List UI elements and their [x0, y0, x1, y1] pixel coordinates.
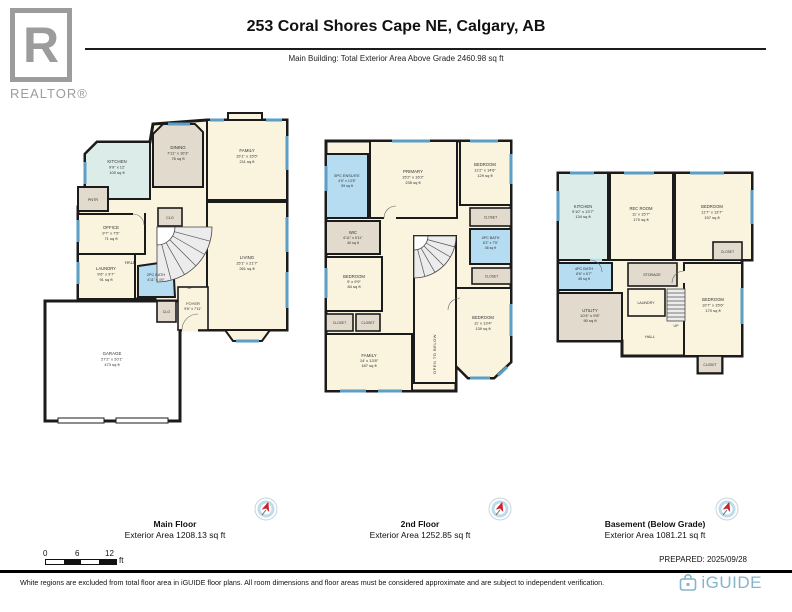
second-floor-plan: 5PC ENSUITE 4'5" x 13'5" 59 sq ft WIC 6'… — [322, 136, 514, 400]
room-label: CLOSET — [721, 250, 734, 254]
room-area: 187 sq ft — [361, 363, 377, 368]
stairs-up-label: UP — [674, 324, 680, 328]
room-label: CLOSET — [333, 321, 346, 325]
floorplan-page: R REALTOR® 253 Coral Shores Cape NE, Cal… — [0, 0, 792, 612]
room-dims: 27'2" x 20'1" — [101, 357, 124, 362]
room-dims: 9'6" x 7'11" — [184, 307, 202, 311]
room-label: FAMILY — [239, 148, 254, 153]
room-dims: 7'11" x 10'3" — [167, 151, 189, 156]
room-area: 134 sq ft — [575, 214, 591, 219]
page-title: 253 Coral Shores Cape NE, Calgary, AB — [0, 18, 792, 36]
room-dims: 11'7" x 13'7" — [701, 210, 723, 215]
room-dims: 4'11" x 4'9" — [147, 278, 165, 282]
room-area: 84 sq ft — [347, 284, 361, 289]
room-label: CLOSET — [484, 216, 497, 220]
room-label: GARAGE — [103, 351, 122, 356]
room-dims: 9'7" x 7'5" — [102, 231, 120, 236]
room-area: 211 sq ft — [239, 159, 255, 164]
room-label: LAUNDRY — [637, 301, 655, 305]
room-label: 5PC ENSUITE — [334, 173, 360, 178]
room-label: PNTR — [88, 198, 99, 202]
room-label: WIC — [349, 230, 357, 235]
room-area: 100 sq ft — [109, 170, 125, 175]
room-label: BEDROOM — [702, 297, 724, 302]
garage-door — [58, 418, 104, 423]
garage-door — [116, 418, 168, 423]
room-dims: 8'6" x 5'7" — [576, 272, 592, 276]
room-label: LAUNDRY — [96, 266, 116, 271]
room-area: 157 sq ft — [704, 215, 720, 220]
room-label: BEDROOM — [701, 204, 723, 209]
scale-bar-segment — [99, 560, 117, 564]
room-dims: 6'11" x 5'11" — [343, 236, 363, 240]
second-floor-caption: 2nd Floor Exterior Area 1252.85 sq ft — [310, 519, 530, 540]
room-dims: 4'5" x 13'5" — [338, 179, 356, 183]
floor-area: Exterior Area 1252.85 sq ft — [310, 530, 530, 540]
stairs-up-label: UP — [187, 286, 193, 290]
room-label: CLOSET — [485, 275, 498, 279]
room-dims: 9'9" x 12' — [109, 165, 125, 170]
room-label: HALL — [645, 334, 656, 339]
floor-name: Basement (Below Grade) — [545, 519, 765, 529]
room-label: CLOSET — [703, 363, 716, 367]
room-dims: 15'1" x 15'5" — [236, 154, 259, 159]
scale-unit: ft — [119, 556, 123, 565]
room-label: STORAGE — [643, 273, 661, 277]
room-label: 4PC BATH — [575, 267, 594, 271]
room-label: DINING — [170, 145, 186, 150]
room-dims: 15'1" x 21'7" — [236, 261, 259, 266]
scale-bar-segment — [64, 560, 82, 564]
room-dims: 6'2" x 7'5" — [483, 241, 499, 245]
room-dims: 15'2" x 16'2" — [402, 175, 425, 180]
room-label: 4PC BATH — [482, 236, 500, 240]
room-label: CLO — [166, 216, 174, 220]
room-label: PRIMARY — [403, 169, 423, 174]
room-label: CLOSET — [361, 321, 374, 325]
room-dims: 9'6" x 9'7" — [97, 272, 115, 277]
main-floor-caption: Main Floor Exterior Area 1208.13 sq ft — [65, 519, 285, 540]
iguide-logo: iGUIDE — [678, 573, 762, 593]
room-area: 473 sq ft — [104, 362, 120, 367]
room-label: FOYER — [186, 301, 200, 306]
scale-bar-rule — [45, 559, 117, 565]
room-area: 40 sq ft — [347, 241, 359, 245]
room-label: CLO — [163, 310, 171, 314]
floor-area: Exterior Area 1081.21 sq ft — [545, 530, 765, 540]
disclaimer-text: White regions are excluded from total fl… — [20, 578, 604, 587]
scale-tick-6: 6 — [75, 549, 79, 558]
room-label: REC ROOM — [629, 206, 653, 211]
floor-area: Exterior Area 1208.13 sq ft — [65, 530, 285, 540]
room-dims: 11' x 15'7" — [632, 212, 651, 217]
scale-bar: 0 6 12 ft — [43, 549, 133, 569]
room-label: LIVING — [240, 255, 255, 260]
room-area: 235 sq ft — [405, 180, 421, 185]
room-area: 45 sq ft — [578, 277, 590, 281]
iguide-wordmark: iGUIDE — [701, 573, 762, 593]
room-label: HALL — [125, 260, 136, 265]
open-to-below-label: OPEN TO BELOW — [432, 334, 437, 374]
room-area: 71 sq ft — [104, 236, 118, 241]
main-floor-plan: KITCHEN 9'9" x 12' 100 sq ft DINING 7'11… — [30, 112, 292, 432]
scale-tick-0: 0 — [43, 549, 47, 558]
scale-tick-12: 12 — [105, 549, 114, 558]
iguide-briefcase-icon — [678, 573, 698, 593]
room-area: 170 sq ft — [633, 217, 649, 222]
footer-divider — [0, 570, 792, 573]
room-label: BEDROOM — [472, 315, 494, 320]
room-area: 139 sq ft — [475, 326, 491, 331]
room-dims: 10'7" x 15'6" — [702, 303, 725, 308]
room-area: 46 sq ft — [485, 246, 497, 250]
straight-staircase — [667, 289, 685, 321]
room-bedroom-right — [456, 288, 511, 378]
room-label: BEDROOM — [474, 162, 496, 167]
room-dims: 11'2" x 14'6" — [474, 168, 496, 173]
room-area: 129 sq ft — [477, 173, 493, 178]
basement-caption: Basement (Below Grade) Exterior Area 108… — [545, 519, 765, 540]
basement-plan: KITCHEN 9'10" x 13'7" 134 sq ft REC ROOM… — [550, 166, 762, 398]
title-divider — [85, 48, 766, 50]
room-label: KITCHEN — [107, 159, 126, 164]
realtor-wordmark: REALTOR® — [10, 86, 88, 101]
floor-name: 2nd Floor — [310, 519, 530, 529]
room-area: 91 sq ft — [99, 277, 113, 282]
floor-name: Main Floor — [65, 519, 285, 529]
room-area: 90 sq ft — [583, 318, 597, 323]
room-label: OFFICE — [103, 225, 119, 230]
living-bay-window — [225, 330, 270, 341]
prepared-date: PREPARED: 2025/09/28 — [659, 555, 747, 564]
room-dims: 11' x 13'4" — [474, 321, 493, 326]
room-area: 59 sq ft — [341, 184, 353, 188]
room-area: 170 sq ft — [705, 308, 721, 313]
room-area: 261 sq ft — [239, 266, 255, 271]
page-subtitle: Main Building: Total Exterior Area Above… — [0, 54, 792, 63]
room-area: 76 sq ft — [171, 156, 185, 161]
room-label: 2PC BATH — [147, 273, 166, 277]
